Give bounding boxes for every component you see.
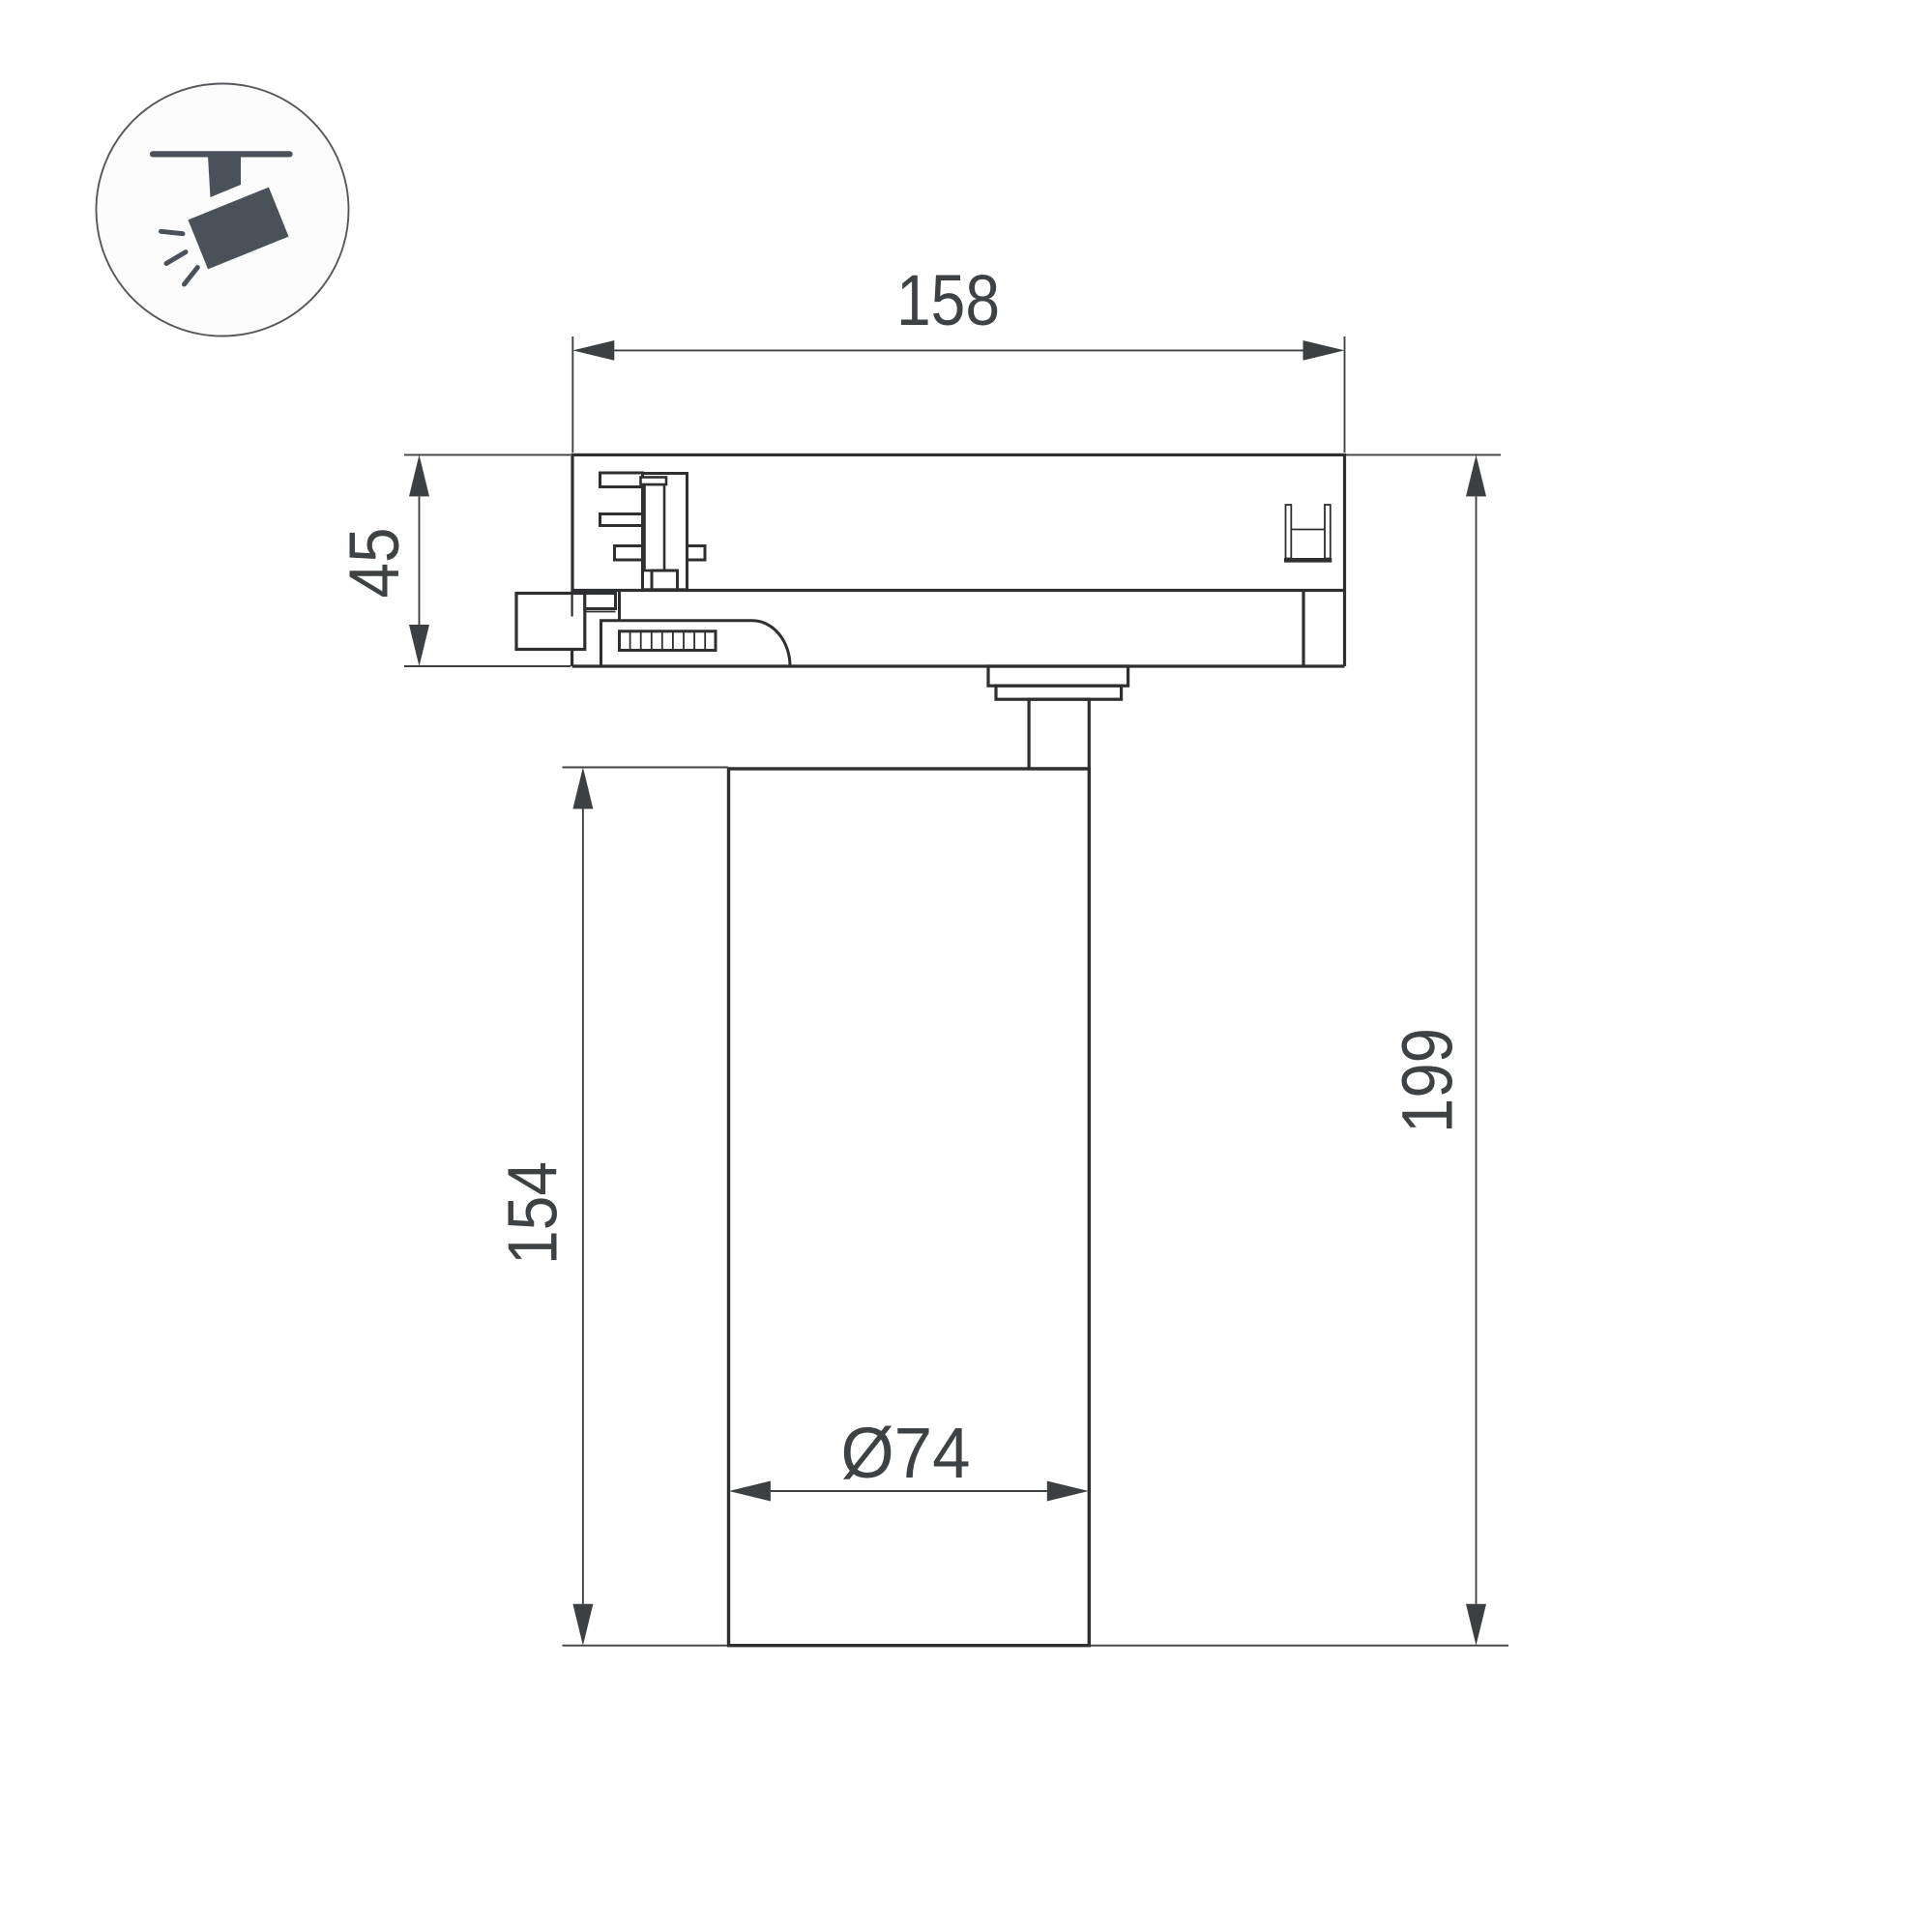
svg-text:45: 45	[336, 528, 414, 599]
svg-text:154: 154	[495, 1161, 572, 1265]
svg-text:Ø74: Ø74	[841, 1413, 971, 1493]
svg-text:158: 158	[896, 260, 1000, 340]
svg-text:199: 199	[1388, 1028, 1468, 1133]
